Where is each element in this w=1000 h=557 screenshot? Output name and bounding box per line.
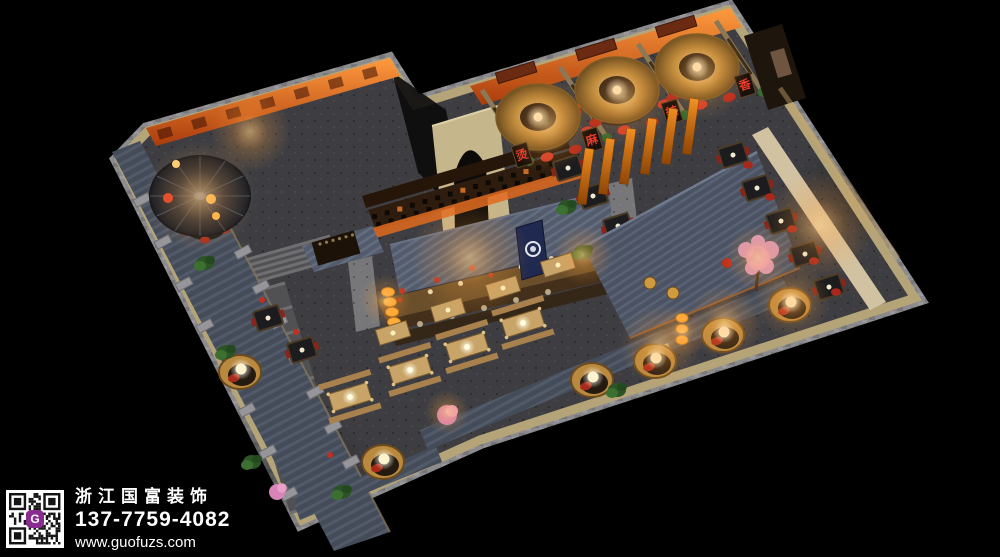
plant-leaf <box>215 350 227 360</box>
light-glow <box>210 92 290 172</box>
qr-code: G <box>6 490 64 548</box>
bench-cushion <box>743 161 753 169</box>
qr-cell <box>43 542 45 544</box>
qr-cell <box>34 501 36 503</box>
qr-cell <box>56 530 58 532</box>
qr-cell <box>36 506 38 508</box>
hanging-basket <box>644 277 656 289</box>
qr-cell <box>36 530 38 532</box>
qr-cell <box>48 533 50 535</box>
round-seal-core <box>530 246 536 252</box>
qr-cell <box>56 520 58 522</box>
qr-cell <box>58 530 60 532</box>
qr-cell <box>46 542 48 544</box>
qr-cell <box>41 537 43 539</box>
qr-cell <box>58 523 60 525</box>
wine-cell <box>540 173 545 178</box>
qr-cell <box>43 528 45 530</box>
qr-cell <box>56 537 58 539</box>
qr-cell <box>48 542 50 544</box>
company-name: 浙江国富装饰 <box>75 488 230 507</box>
qr-cell <box>46 523 48 525</box>
qr-cell <box>53 518 55 520</box>
qr-cell <box>34 506 36 508</box>
wine-cell <box>498 177 503 182</box>
qr-cell <box>19 515 21 517</box>
qr-cell <box>19 513 21 515</box>
qr-cell <box>46 535 48 537</box>
qr-cell <box>58 542 60 544</box>
plant-leaf <box>226 345 236 353</box>
wine-cell <box>502 185 507 190</box>
qr-cell <box>11 515 13 517</box>
qr-cell <box>38 498 40 500</box>
qr-cell <box>31 501 33 503</box>
qr-finder <box>48 498 55 505</box>
wine-cell <box>460 188 465 193</box>
qr-cell <box>36 503 38 505</box>
qr-cell <box>58 518 60 520</box>
watermark: G 浙江国富装饰 137-7759-4082 www.guofuzs.com <box>6 488 230 551</box>
qr-logo-badge: G <box>26 510 44 528</box>
qr-cell <box>56 528 58 530</box>
qr-cell <box>53 515 55 517</box>
shelf-bowl <box>417 321 423 327</box>
qr-finder <box>14 533 21 540</box>
wine-cell <box>448 192 453 197</box>
restaurant-aerial-render: 烫麻辣香 G 浙江国富装饰 137-7759-4082 www.guofuzs.… <box>0 0 1000 557</box>
render-scene: 烫麻辣香 <box>0 0 1000 557</box>
qr-cell <box>43 537 45 539</box>
light-glow <box>724 224 792 292</box>
plant-leaf <box>331 490 343 500</box>
light-glow <box>656 306 708 358</box>
qr-cell <box>14 520 16 522</box>
qr-cell <box>46 515 48 517</box>
watermark-text: 浙江国富装饰 137-7759-4082 www.guofuzs.com <box>75 488 230 551</box>
qr-logo-letter: G <box>30 512 39 526</box>
qr-cell <box>38 542 40 544</box>
wine-cell <box>423 199 428 204</box>
qr-cell <box>29 501 31 503</box>
qr-cell <box>31 498 33 500</box>
qr-cell <box>31 503 33 505</box>
qr-cell <box>53 542 55 544</box>
qr-cell <box>34 493 36 495</box>
qr-cell <box>38 506 40 508</box>
qr-cell <box>46 533 48 535</box>
qr-cell <box>29 535 31 537</box>
wine-cell <box>490 188 495 193</box>
qr-cell <box>29 498 31 500</box>
jar <box>351 233 354 236</box>
hanging-basket <box>667 287 679 299</box>
qr-cell <box>36 540 38 542</box>
qr-cell <box>48 535 50 537</box>
qr-cell <box>48 520 50 522</box>
qr-cell <box>29 537 31 539</box>
qr-cell <box>58 528 60 530</box>
wine-cell <box>410 203 415 208</box>
qr-cell <box>46 537 48 539</box>
jar <box>344 235 347 238</box>
wine-cell <box>385 210 390 215</box>
blossom-cluster <box>277 483 287 493</box>
qr-cell <box>21 513 23 515</box>
qr-cell <box>58 525 60 527</box>
qr-cell <box>14 518 16 520</box>
jar <box>331 239 334 242</box>
pod-lamp <box>236 364 247 375</box>
qr-cell <box>19 518 21 520</box>
light-glow <box>410 198 530 318</box>
qr-cell <box>41 540 43 542</box>
qr-cell <box>36 542 38 544</box>
pod-lamp <box>588 372 599 383</box>
qr-cell <box>19 520 21 522</box>
plant-leaf <box>241 460 253 470</box>
qr-finder <box>14 498 21 505</box>
website-url: www.guofuzs.com <box>75 535 230 552</box>
qr-cell <box>31 535 33 537</box>
light-glow <box>653 25 749 121</box>
wine-cell <box>435 195 440 200</box>
qr-cell <box>51 525 53 527</box>
qr-cell <box>11 513 13 515</box>
wine-cell <box>486 180 491 185</box>
qr-cell <box>56 518 58 520</box>
plant-leaf <box>194 261 206 271</box>
qr-cell <box>51 513 53 515</box>
wine-cell <box>524 169 529 174</box>
wine-cell <box>511 173 516 178</box>
plant-leaf <box>606 388 618 398</box>
qr-cell <box>56 535 58 537</box>
qr-cell <box>38 533 40 535</box>
qr-cell <box>51 537 53 539</box>
light-glow <box>359 274 411 326</box>
plant-leaf <box>556 205 568 215</box>
jar <box>338 237 341 240</box>
wine-cell <box>528 177 533 182</box>
qr-cell <box>48 515 50 517</box>
red-lantern-dot <box>327 452 333 458</box>
qr-cell <box>46 540 48 542</box>
qr-cell <box>38 503 40 505</box>
qr-cell <box>38 496 40 498</box>
qr-cell <box>46 530 48 532</box>
qr-cell <box>48 513 50 515</box>
wine-cell <box>397 207 402 212</box>
qr-cell <box>51 523 53 525</box>
qr-cell <box>41 542 43 544</box>
qr-cell <box>29 506 31 508</box>
jar <box>318 242 321 245</box>
qr-cell <box>34 496 36 498</box>
qr-cell <box>36 537 38 539</box>
qr-cell <box>46 518 48 520</box>
red-lantern-dot <box>259 297 265 303</box>
qr-cell <box>56 533 58 535</box>
scene-root: 烫麻辣香 <box>112 8 970 551</box>
qr-cell <box>58 513 60 515</box>
phone-number: 137-7759-4082 <box>75 508 230 532</box>
plant-leaf <box>567 200 577 208</box>
qr-cell <box>56 540 58 542</box>
wine-cell <box>515 181 520 186</box>
pod-lamp <box>379 454 390 465</box>
qr-cell <box>34 533 36 535</box>
bench-cushion <box>831 288 841 296</box>
qr-cell <box>56 523 58 525</box>
plant-leaf <box>617 383 627 391</box>
qr-cell <box>9 515 11 517</box>
qr-cell <box>36 493 38 495</box>
wine-cell <box>372 214 377 219</box>
shelf-bowl <box>545 289 551 295</box>
qr-cell <box>43 525 45 527</box>
qr-cell <box>53 535 55 537</box>
qr-cell <box>51 535 53 537</box>
red-lantern-dot <box>293 329 299 335</box>
plant-leaf <box>252 455 262 463</box>
qr-cell <box>31 537 33 539</box>
light-glow <box>425 390 469 434</box>
qr-cell <box>38 535 40 537</box>
plant-leaf <box>205 256 215 264</box>
qr-cell <box>41 535 43 537</box>
qr-cell <box>14 523 16 525</box>
qr-cell <box>48 528 50 530</box>
light-glow <box>553 225 613 285</box>
qr-cell <box>36 496 38 498</box>
plant-leaf <box>342 485 352 493</box>
qr-cell <box>41 528 43 530</box>
qr-cell <box>38 537 40 539</box>
qr-cell <box>34 537 36 539</box>
jar <box>325 241 328 244</box>
wine-cell <box>473 184 478 189</box>
qr-cell <box>53 513 55 515</box>
qr-cell <box>53 525 55 527</box>
qr-cell <box>58 515 60 517</box>
